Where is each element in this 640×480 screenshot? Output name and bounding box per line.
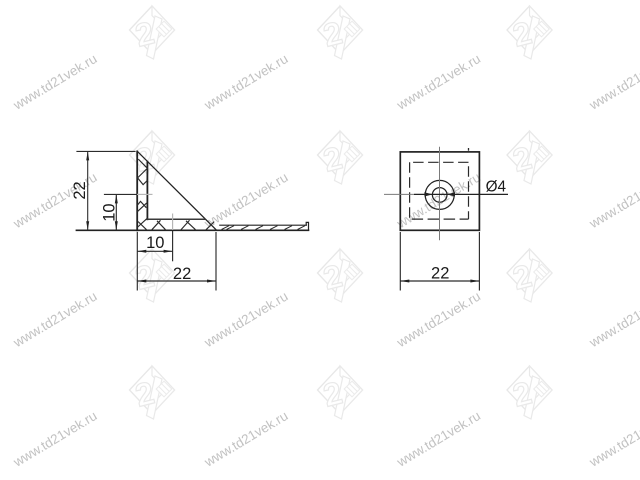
svg-text:22: 22 [71, 181, 89, 199]
svg-text:Ø4: Ø4 [486, 179, 507, 196]
svg-text:22: 22 [431, 265, 449, 283]
svg-text:10: 10 [146, 234, 164, 252]
svg-text:10: 10 [101, 203, 119, 221]
svg-text:22: 22 [173, 265, 191, 283]
